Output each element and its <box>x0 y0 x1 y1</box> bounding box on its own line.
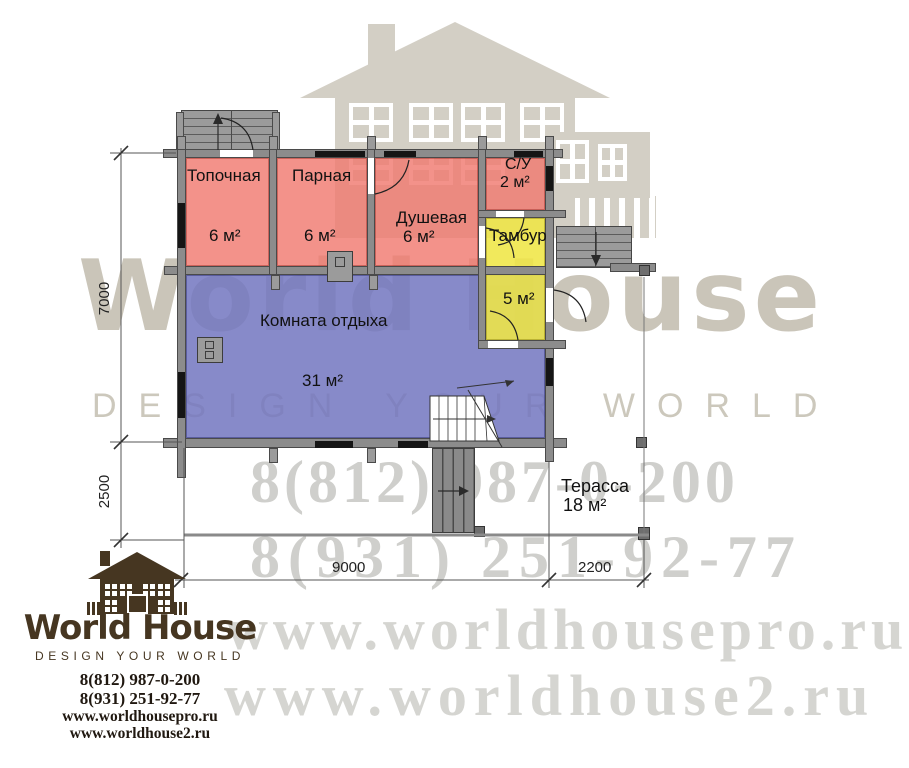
watermark-website-2: www.worldhouse2.ru <box>224 667 875 725</box>
logo-phone-1: 8(812) 987-0-200 <box>18 671 262 689</box>
logo-text-block: World House DESIGN YOUR WORLD 8(812) 987… <box>18 610 262 742</box>
room-label-lounge: Комната отдыха <box>260 312 388 331</box>
watermark-phone-2: 8(931) 251-92-77 <box>250 527 803 587</box>
door-opening-exit <box>546 288 553 322</box>
bg-house-chimney <box>368 24 395 76</box>
door-opening-entry <box>220 150 253 157</box>
sauna-stove-core <box>335 257 345 267</box>
window <box>178 203 185 248</box>
window <box>315 151 365 157</box>
room-area-tambur: 5 м² <box>503 290 535 309</box>
window <box>384 151 416 157</box>
dimension-height-terrace: 2500 <box>96 475 113 508</box>
log-post <box>367 448 376 463</box>
room-area-topochnaya: 6 м² <box>209 227 241 246</box>
bg-house-roof <box>300 22 610 98</box>
terrace-steps <box>432 448 475 533</box>
logo-house-chimney <box>100 551 110 566</box>
room-label-topochnaya: Топочная <box>187 167 261 186</box>
floor-plan-page: World House DESIGN YOUR WORLD 8(812) 987… <box>0 0 909 768</box>
watermark-phone-1: 8(812) 987-0-200 <box>250 452 739 512</box>
window <box>315 441 353 448</box>
entry-porch-top-divider <box>231 110 232 152</box>
room-area-dushevaya: 6 м² <box>403 228 435 247</box>
window <box>178 372 185 418</box>
watermark-website-1: www.worldhousepro.ru <box>226 601 908 659</box>
room-label-terrace: Терасса <box>561 477 629 497</box>
wall-left <box>177 149 186 478</box>
door-opening-su <box>496 211 524 217</box>
dimension-height-main: 7000 <box>96 282 113 315</box>
entry-porch-right <box>556 226 632 268</box>
dimension-width-terrace: 2200 <box>578 559 611 576</box>
door-opening-parnaya <box>368 158 374 194</box>
terrace-post <box>636 437 647 448</box>
terrace-post <box>639 265 650 276</box>
window <box>398 441 428 448</box>
entry-porch-right-divider <box>595 226 596 268</box>
room-label-su: С/У <box>505 156 531 174</box>
logo-house-window <box>105 584 117 596</box>
electrical-box-switch <box>205 341 214 349</box>
logo-brand: World House <box>18 610 262 647</box>
log-post <box>271 275 280 290</box>
door-opening-dushevaya <box>479 226 485 258</box>
wall-bottom <box>163 438 567 448</box>
wall-mid <box>164 266 553 275</box>
bg-annex-window <box>598 144 627 181</box>
room-label-tambur: Тамбур <box>489 227 547 246</box>
entry-porch-top <box>181 110 278 152</box>
logo-slogan: DESIGN YOUR WORLD <box>18 649 262 663</box>
dimension-width-main: 9000 <box>332 559 365 576</box>
window <box>546 358 553 386</box>
electrical-box-switch <box>205 351 214 359</box>
terrace-post <box>638 527 650 540</box>
room-label-dushevaya: Душевая <box>396 209 467 228</box>
log-post <box>269 448 278 463</box>
terrace-post <box>474 526 485 537</box>
room-area-terrace: 18 м² <box>563 496 606 516</box>
room-area-su: 2 м² <box>500 174 530 192</box>
logo-website-1: www.worldhousepro.ru <box>18 708 262 725</box>
room-area-lounge: 31 м² <box>302 372 343 391</box>
log-post <box>369 275 378 290</box>
door-opening-lounge-tambur <box>488 341 518 348</box>
wall-topochnaya-parnaya <box>269 149 277 275</box>
room-area-parnaya: 6 м² <box>304 227 336 246</box>
logo-house-window <box>158 584 170 596</box>
logo-phone-2: 8(931) 251-92-77 <box>18 690 262 708</box>
bg-house-window <box>409 103 453 142</box>
room-label-parnaya: Парная <box>292 167 351 186</box>
window <box>546 166 553 191</box>
bg-annex-window <box>556 140 589 183</box>
logo-website-2: www.worldhouse2.ru <box>18 725 262 742</box>
